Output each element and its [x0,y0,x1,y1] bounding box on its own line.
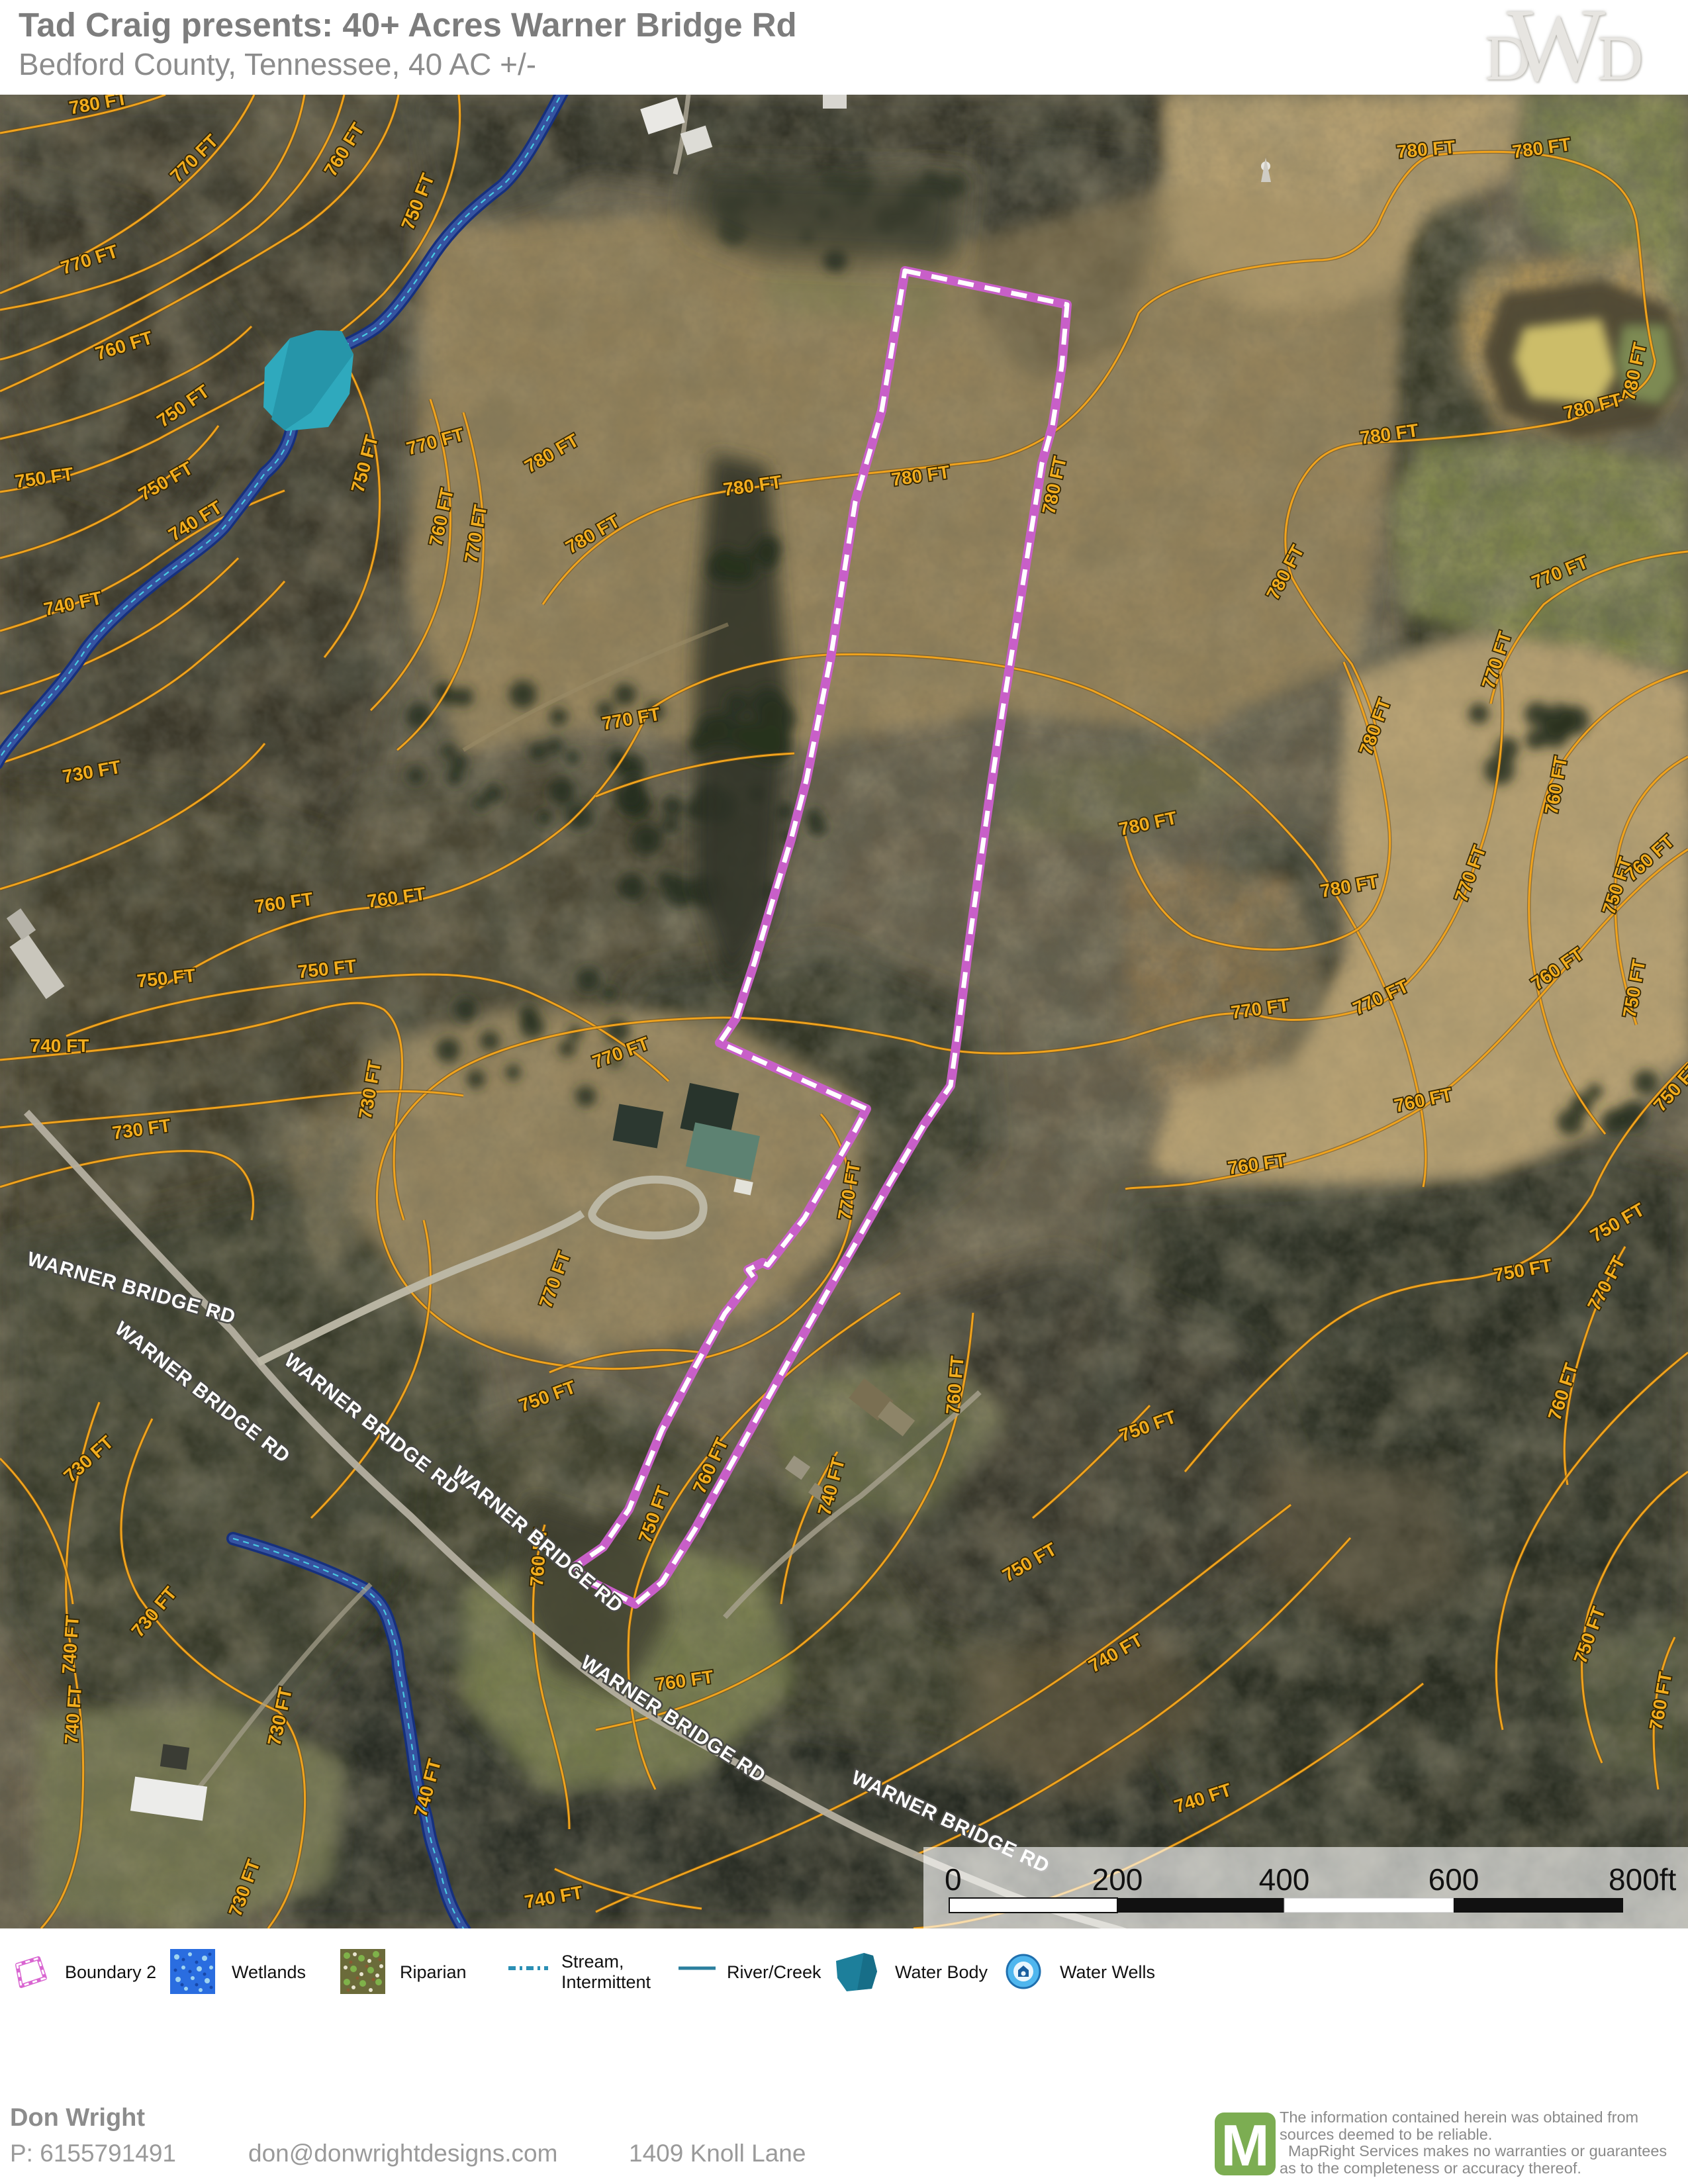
svg-text:740 FT: 740 FT [61,1685,85,1745]
svg-text:800ft: 800ft [1609,1862,1677,1897]
svg-text:400: 400 [1259,1862,1310,1897]
svg-text:200: 200 [1092,1862,1143,1897]
svg-text:0: 0 [945,1862,962,1897]
svg-text:740 FT: 740 FT [30,1035,89,1056]
svg-text:740 FT: 740 FT [58,1615,83,1675]
svg-text:600: 600 [1429,1862,1479,1897]
